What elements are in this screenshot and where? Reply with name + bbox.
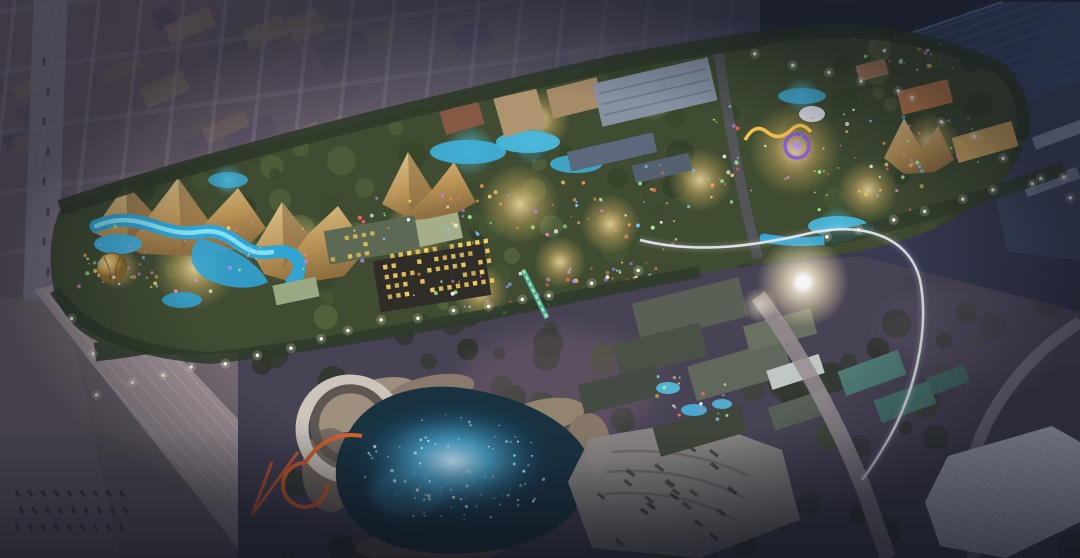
aerial-theme-park-concept-art <box>0 0 1080 558</box>
atmosphere <box>0 0 1080 558</box>
bottom-fade <box>0 430 1080 558</box>
concept-art-canvas <box>0 0 1080 558</box>
